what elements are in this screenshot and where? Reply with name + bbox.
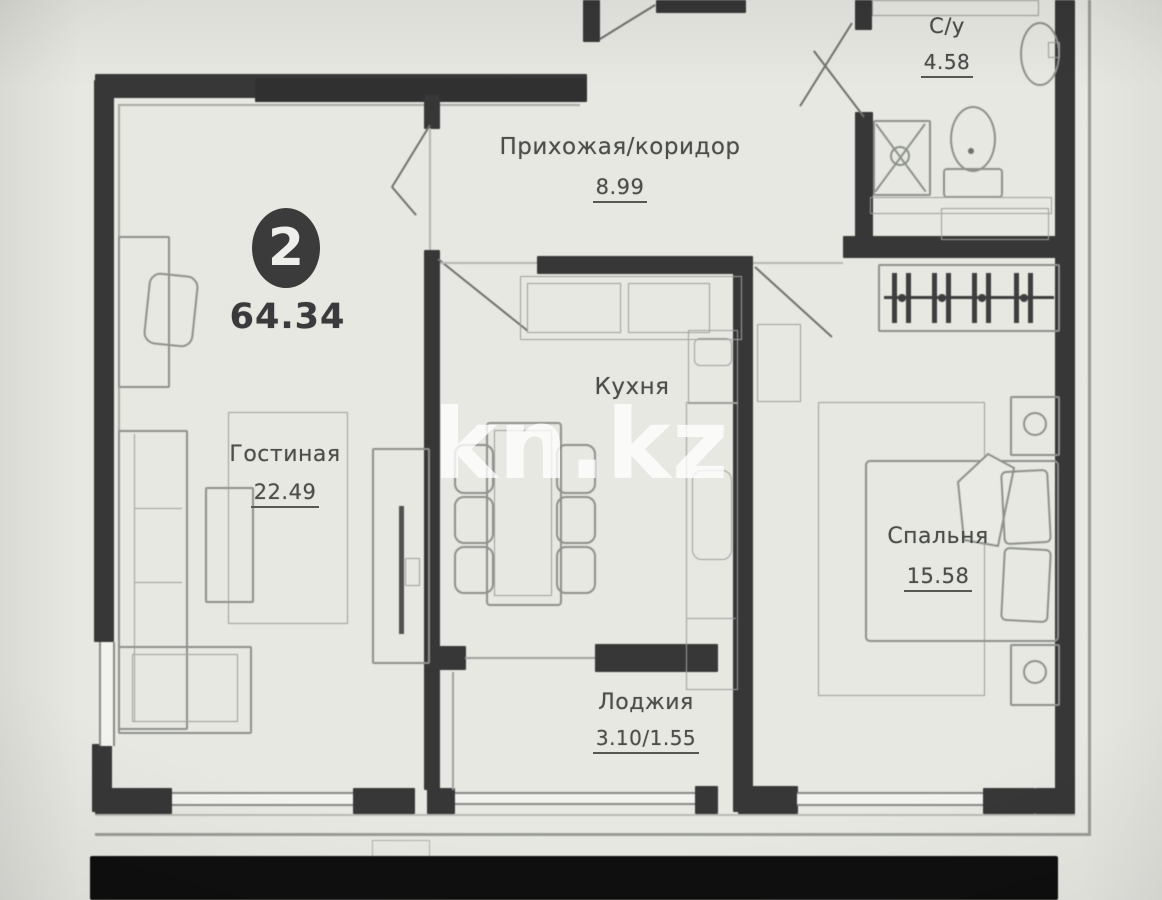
room-area: 15.58: [904, 564, 973, 592]
room-area: 8.99: [593, 175, 648, 203]
room-label-living: Гостиная 22.49: [212, 442, 358, 508]
total-area: 64.34: [225, 297, 350, 337]
floorplan-photo: 2 64.34 Прихожая/коридор 8.99 С/у 4.58 К…: [0, 0, 1162, 900]
room-area: 3.10/1.55: [593, 726, 699, 754]
room-label-loggia: Лоджия 3.10/1.55: [570, 690, 722, 754]
room-area: 22.49: [251, 480, 320, 508]
room-name: Спальня: [863, 524, 1013, 549]
room-name: С/у: [892, 14, 1002, 38]
watermark: kn.kz: [433, 396, 729, 493]
rooms-count-badge: 2: [252, 208, 320, 288]
plan-labels: 2 64.34 Прихожая/коридор 8.99 С/у 4.58 К…: [0, 0, 1162, 900]
room-name: Лоджия: [570, 690, 722, 715]
room-label-hallway: Прихожая/коридор 8.99: [470, 134, 770, 203]
room-name: Прихожая/коридор: [470, 134, 770, 160]
room-name: Гостиная: [212, 442, 358, 467]
room-area: 4.58: [921, 50, 974, 78]
room-label-bathroom: С/у 4.58: [892, 14, 1002, 78]
room-label-bedroom: Спальня 15.58: [863, 524, 1013, 592]
rooms-count: 2: [268, 218, 304, 278]
